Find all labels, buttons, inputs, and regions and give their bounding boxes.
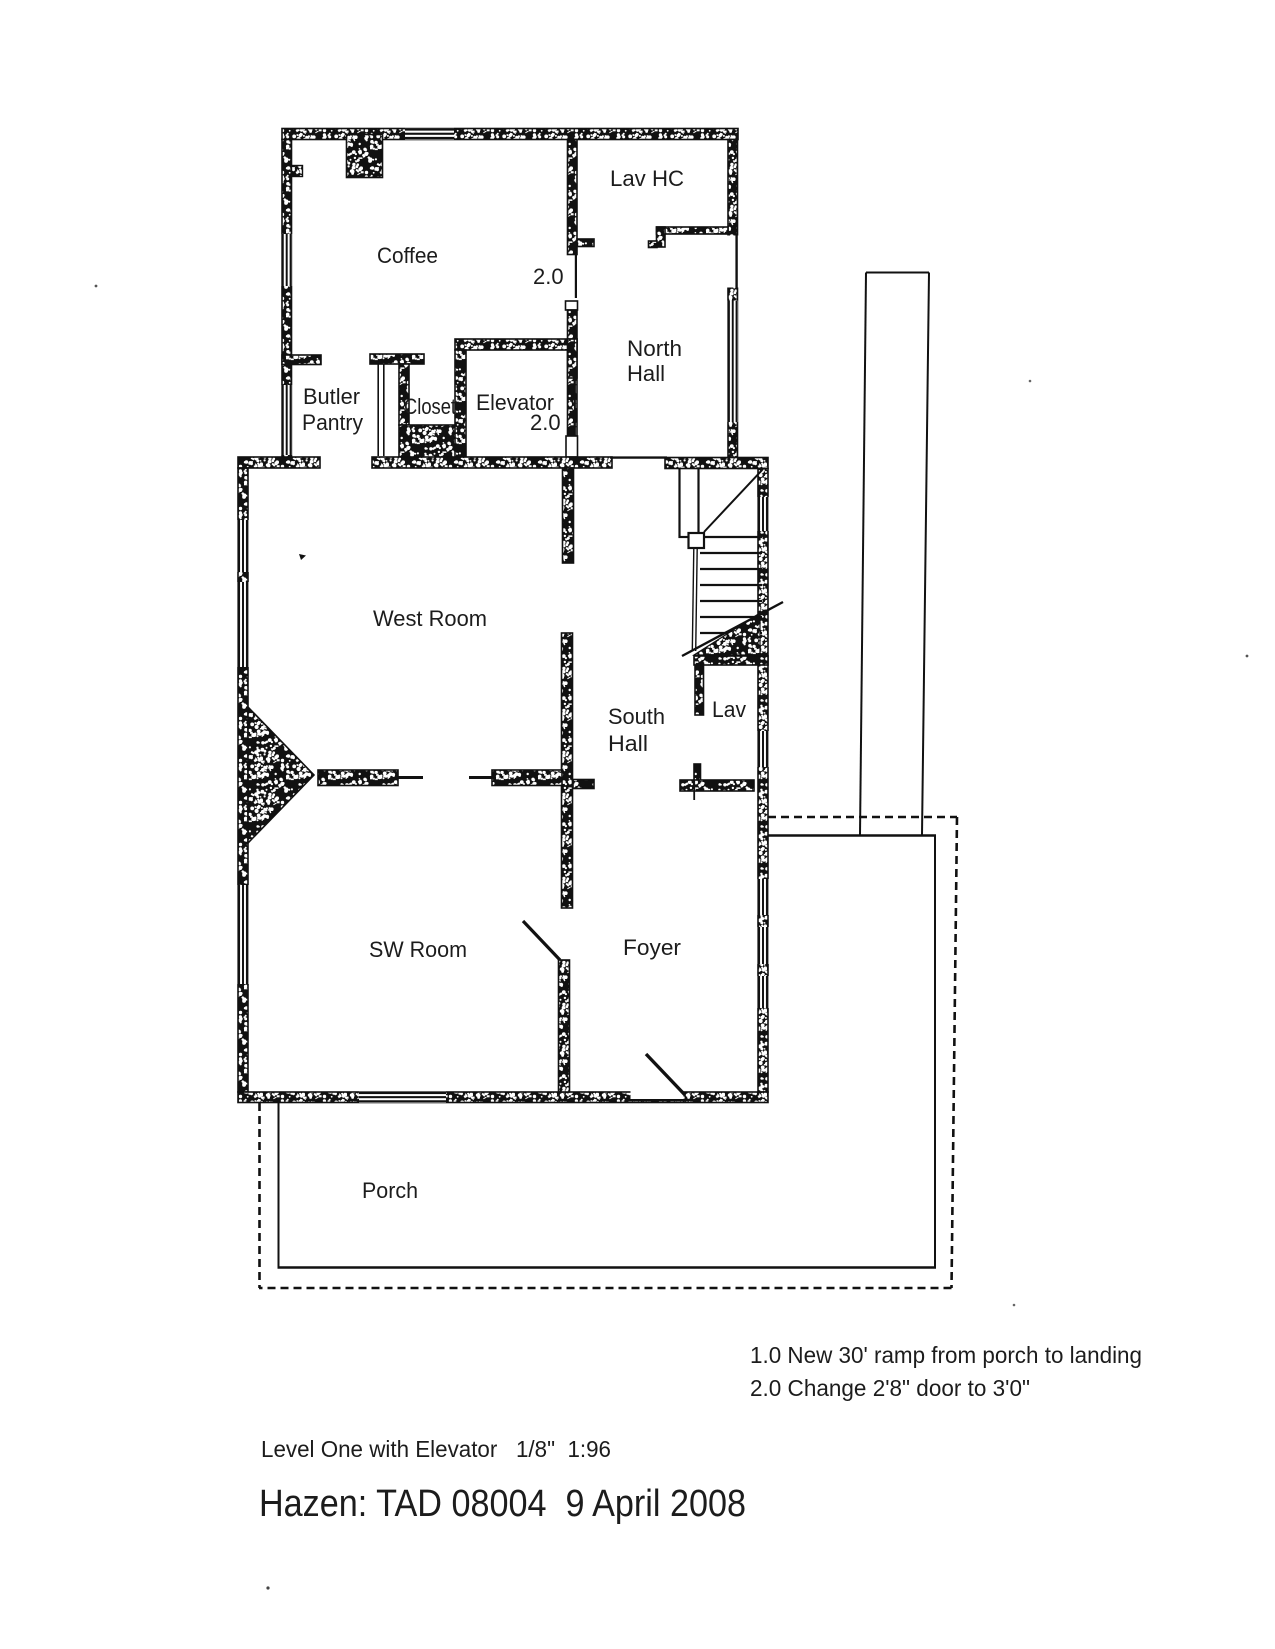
svg-text:West Room: West Room bbox=[373, 606, 487, 631]
svg-text:Foyer: Foyer bbox=[623, 935, 681, 960]
svg-text:2.0 Change 2'8" door to 3'0": 2.0 Change 2'8" door to 3'0" bbox=[750, 1375, 1030, 1401]
svg-text:1.0 New 30' ramp from porch to: 1.0 New 30' ramp from porch to landing bbox=[750, 1342, 1142, 1368]
svg-text:Hall: Hall bbox=[627, 361, 665, 386]
svg-text:North: North bbox=[627, 336, 682, 361]
svg-text:Coffee: Coffee bbox=[377, 243, 438, 268]
svg-text:2.0: 2.0 bbox=[533, 264, 564, 289]
svg-text:2.0: 2.0 bbox=[530, 410, 561, 435]
svg-text:Hazen: TAD 08004 9 April 2008: Hazen: TAD 08004 9 April 2008 bbox=[259, 1483, 746, 1525]
svg-text:Level One with Elevator 1/8": Level One with Elevator 1/8" 1:96 bbox=[261, 1436, 611, 1462]
svg-text:Butler: Butler bbox=[303, 384, 360, 409]
svg-text:South: South bbox=[608, 704, 665, 729]
svg-text:SW Room: SW Room bbox=[369, 937, 467, 962]
svg-text:Porch: Porch bbox=[362, 1178, 418, 1203]
svg-text:Lav: Lav bbox=[712, 697, 746, 722]
svg-text:Closet: Closet bbox=[404, 394, 456, 419]
svg-text:Lav HC: Lav HC bbox=[610, 166, 684, 191]
svg-text:Hall: Hall bbox=[608, 731, 648, 756]
svg-text:Pantry: Pantry bbox=[302, 410, 363, 435]
